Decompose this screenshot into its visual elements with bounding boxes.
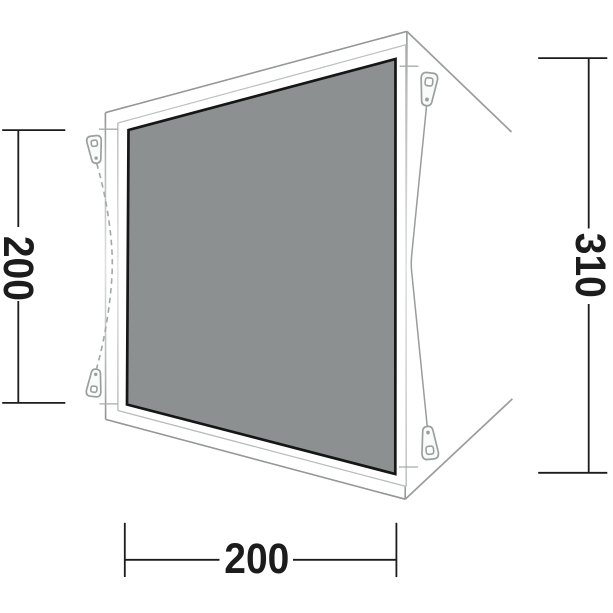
svg-text:200: 200 [224, 534, 289, 582]
svg-text:200: 200 [0, 236, 43, 301]
svg-text:310: 310 [567, 233, 613, 298]
